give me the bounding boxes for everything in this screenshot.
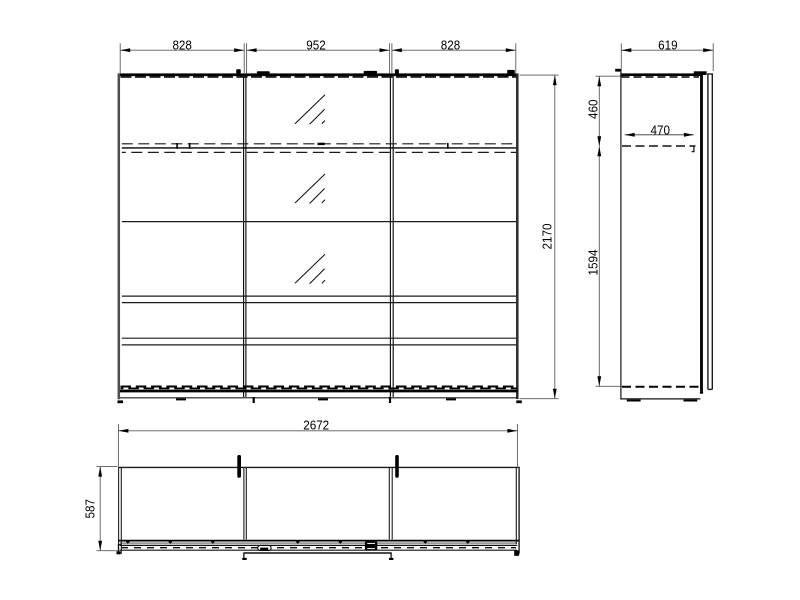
svg-text:1594: 1594 — [586, 250, 601, 276]
svg-text:952: 952 — [306, 37, 326, 52]
svg-text:828: 828 — [441, 37, 461, 52]
svg-text:619: 619 — [658, 37, 678, 52]
svg-text:828: 828 — [172, 37, 192, 52]
svg-text:587: 587 — [82, 499, 97, 519]
svg-text:2672: 2672 — [303, 418, 329, 433]
svg-text:470: 470 — [651, 122, 671, 137]
svg-text:2170: 2170 — [539, 224, 554, 250]
svg-text:460: 460 — [586, 100, 601, 120]
